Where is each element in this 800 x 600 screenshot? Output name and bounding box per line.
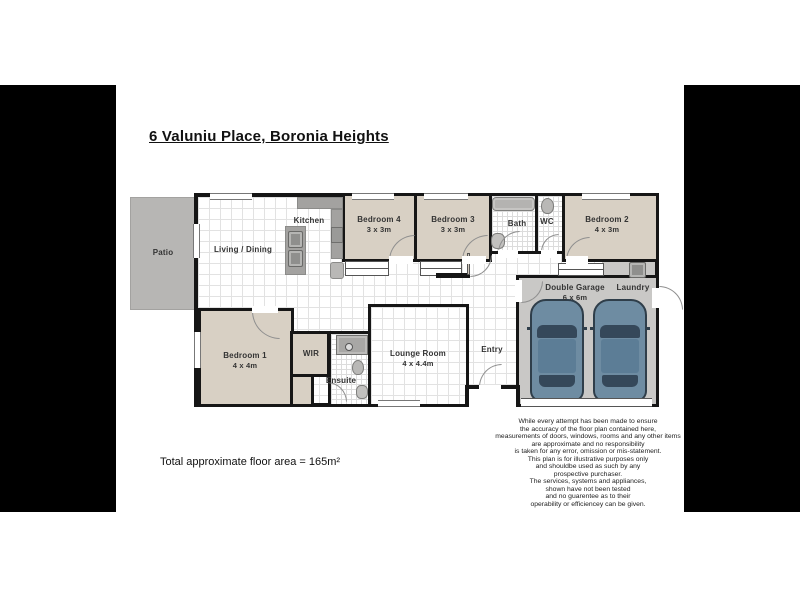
window bbox=[352, 193, 394, 200]
floorplan-page: 6 Valuniu Place, Boronia Heights bbox=[0, 0, 800, 600]
wc-toilet bbox=[541, 198, 554, 214]
front-door-gap bbox=[479, 385, 501, 390]
car-2 bbox=[593, 299, 647, 402]
car-mirror bbox=[527, 327, 532, 330]
wardrobe-bedroom-4 bbox=[345, 261, 389, 276]
car-rear-window bbox=[602, 375, 638, 387]
floor-area-note: Total approximate floor area = 165m² bbox=[160, 456, 340, 468]
letterbox-right bbox=[684, 85, 800, 512]
window bbox=[194, 332, 201, 368]
page-title: 6 Valuniu Place, Boronia Heights bbox=[149, 128, 389, 145]
letterbox-left bbox=[0, 85, 116, 512]
label-garage: Double Garage 6 x 6m bbox=[545, 283, 605, 303]
window bbox=[378, 400, 420, 407]
label-bedroom-4: Bedroom 4 3 x 3m bbox=[357, 215, 401, 235]
label-patio: Patio bbox=[153, 248, 174, 258]
car-roof bbox=[601, 339, 639, 373]
fridge bbox=[330, 262, 344, 279]
patio-sliding-door bbox=[193, 224, 200, 258]
linen-cupboard bbox=[558, 263, 604, 276]
bathtub bbox=[492, 197, 535, 211]
kitchen-sink-1 bbox=[288, 231, 303, 248]
label-wir: WIR bbox=[303, 349, 319, 359]
ensuite-basin bbox=[356, 385, 368, 399]
label-bedroom-1: Bedroom 1 4 x 4m bbox=[223, 351, 267, 371]
label-laundry: Laundry bbox=[617, 283, 650, 293]
room-wir-leg bbox=[290, 374, 314, 407]
car-roof bbox=[538, 339, 576, 373]
door-gap bbox=[462, 256, 486, 264]
car-windshield bbox=[600, 325, 640, 338]
label-bath: Bath bbox=[508, 219, 527, 229]
garage-roller-door bbox=[521, 398, 652, 407]
door-gap bbox=[541, 250, 557, 258]
stove bbox=[331, 227, 343, 243]
window bbox=[424, 193, 468, 200]
car-1 bbox=[530, 299, 584, 402]
kitchen-counter-top bbox=[297, 197, 343, 209]
hall-wall-segment bbox=[436, 273, 470, 278]
car-mirror bbox=[590, 327, 595, 330]
label-lounge: Lounge Room 4 x 4.4m bbox=[390, 349, 446, 369]
door-arc-garage-external bbox=[659, 286, 683, 310]
door-gap bbox=[566, 256, 588, 264]
label-entry: Entry bbox=[481, 345, 502, 355]
disclaimer-text: While every attempt has been made to ens… bbox=[480, 418, 696, 508]
label-kitchen: Kitchen bbox=[294, 216, 325, 226]
window bbox=[210, 193, 252, 200]
car-mirror bbox=[645, 327, 650, 330]
door-gap bbox=[515, 280, 522, 302]
label-ensuite: Ensuite bbox=[326, 376, 356, 386]
label-living-dining: Living / Dining bbox=[214, 245, 272, 255]
shower-head-icon bbox=[345, 343, 353, 351]
ensuite-toilet bbox=[352, 360, 364, 375]
door-gap bbox=[652, 288, 660, 308]
car-mirror bbox=[582, 327, 587, 330]
laundry-tub bbox=[629, 262, 646, 278]
kitchen-sink-2 bbox=[288, 250, 303, 267]
label-bedroom-3: Bedroom 3 3 x 3m bbox=[431, 215, 475, 235]
door-gap bbox=[389, 256, 413, 264]
window bbox=[582, 193, 630, 200]
door-gap bbox=[498, 250, 518, 258]
door-gap bbox=[252, 306, 278, 313]
car-rear-window bbox=[539, 375, 575, 387]
car-windshield bbox=[537, 325, 577, 338]
label-bedroom-2: Bedroom 2 4 x 3m bbox=[585, 215, 629, 235]
label-wc: WC bbox=[540, 217, 554, 227]
shower bbox=[336, 335, 368, 355]
